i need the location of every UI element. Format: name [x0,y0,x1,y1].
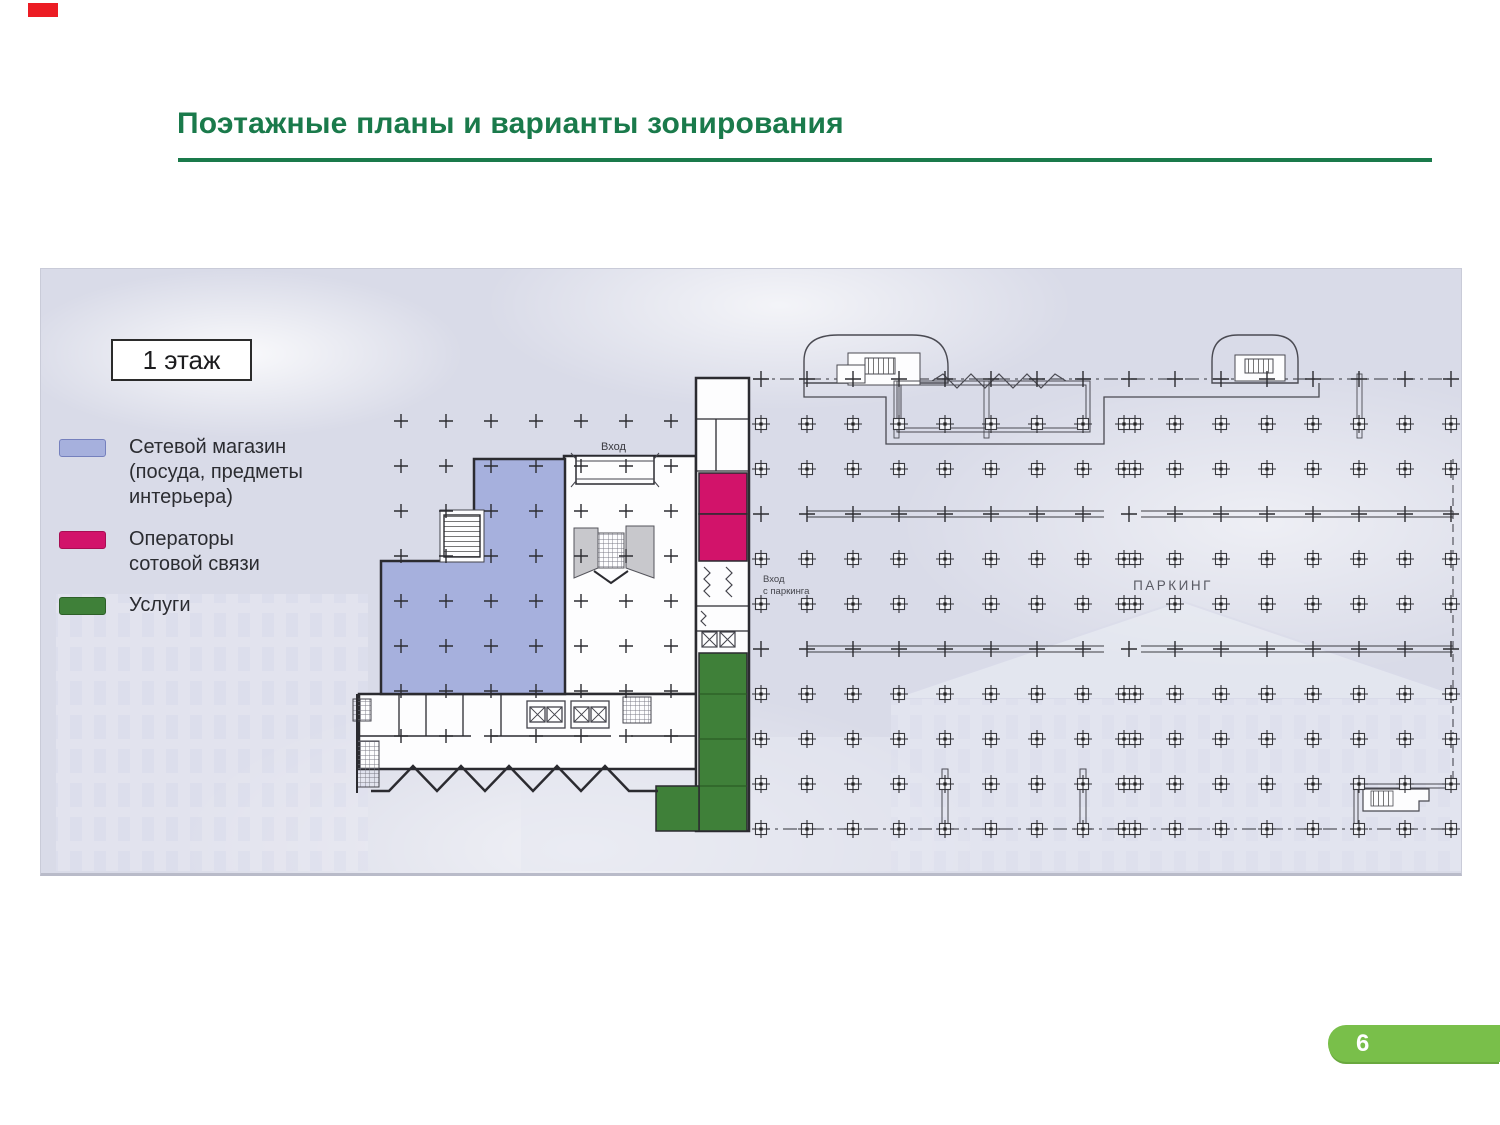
plan-legend: Сетевой магазин (посуда, предметы интерь… [41,269,371,669]
legend-label-chain-store: Сетевой магазин (посуда, предметы интерь… [129,435,369,510]
zone-mobile-operator-2 [699,514,747,561]
entrance-label: Вход [601,441,626,453]
zone-services-strip [699,653,747,831]
page-title: Поэтажные планы и варианты зонирования [177,107,844,141]
red-corner-mark [28,3,58,17]
zone-chain-store [381,459,565,694]
parking-entrance-label-2: с паркинга [763,586,810,597]
page-number-badge: 6 [1328,1025,1500,1062]
page-number: 6 [1356,1025,1369,1062]
floor-plan-image: Вход Вход с паркинга ПАРКИНГ 1 этаж Сете… [40,268,1462,876]
legend-swatch-chain-store [59,439,106,457]
legend-swatch-services [59,597,106,615]
zone-mobile-operator-1 [699,473,747,514]
legend-label-services: Услуги [129,593,369,618]
retail-building [353,378,749,831]
parking-entrance-label-1: Вход [763,574,785,585]
legend-label-mobile-operators: Операторы сотовой связи [129,527,369,577]
zone-services-block [656,786,699,831]
parking-label: ПАРКИНГ [1133,578,1213,593]
legend-swatch-mobile-operators [59,531,106,549]
title-underline [178,158,1432,162]
